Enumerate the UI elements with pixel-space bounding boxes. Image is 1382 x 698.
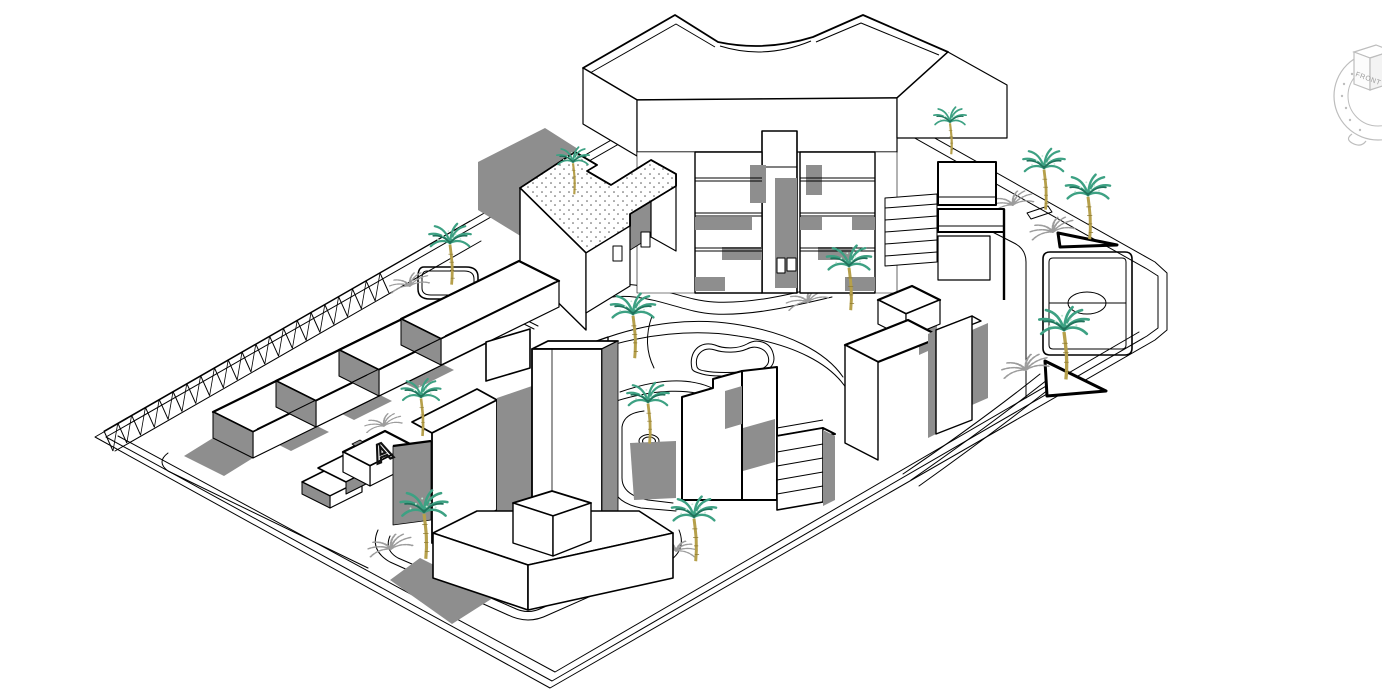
main-community-building-face [695,277,725,291]
parking-stall-hatch [141,407,146,435]
center-towers-face [602,341,618,520]
main-community-building-face [938,209,1004,232]
parking-deck-building-face [777,428,823,510]
main-community-building-face [750,165,766,203]
main-community-building-face [777,258,785,273]
main-community-building-face [787,258,796,271]
palm-tree-shadow [362,411,403,433]
right-cluster-buildings-face [928,330,936,438]
parking-stall-hatch [223,360,228,388]
parking-deck-building-face [777,420,823,428]
right-cluster-buildings-face [845,345,878,460]
parking-stall-hatch [292,320,297,348]
parking-stall-hatch [154,399,159,427]
main-community-building-face [938,162,996,205]
parking-deck-building [777,420,835,510]
parking-stall-hatch [113,423,118,451]
right-cluster-buildings-face [936,316,972,434]
tower-pad-top [622,411,644,427]
parking-stall-hatch [210,368,215,396]
parking-stall-hatch [182,384,187,412]
parking-stall-hatch [334,297,339,325]
stippled-roof-building-face [641,232,650,247]
palm-tree-shadow [365,530,414,557]
parking-stall-hatch [265,336,270,364]
main-community-building-face [852,217,875,230]
parking-stall-hatch [306,313,311,341]
main-community-building-face [722,247,762,260]
parking-stall-hatch [320,305,325,333]
stippled-roof-building-face [613,246,622,261]
parking-stall-hatch [348,289,353,317]
parking-stall-hatch [237,352,242,380]
main-community-building [583,15,1007,300]
palm-tree-shadow [999,350,1051,378]
shadow-tower-pad [630,441,676,500]
parking-stall-hatch [196,376,201,404]
planter-triangle-bottom [1045,361,1106,396]
center-apartment-block [682,367,777,500]
center-apartment-block-face [743,419,775,471]
courtyard-path-7 [647,316,654,368]
main-community-building-face [583,15,948,100]
center-apartment-block-face [725,386,742,429]
view-cube-roll-arrow-icon[interactable] [1349,134,1367,145]
view-cube[interactable]: FRONT [1334,45,1382,145]
parking-stall-hatch [127,415,132,443]
parking-stall-hatch [279,328,284,356]
main-community-building-face [806,165,822,195]
shadow-right-tower-strip [972,323,988,405]
buildings [213,15,1007,610]
main-community-building-face [938,236,990,280]
parking-deck-building-face [823,430,835,506]
parking-stall-hatch [251,344,256,372]
main-community-building-face [695,217,752,230]
parking-stall-hatch [168,392,173,420]
model-canvas[interactable]: A FRONT [0,0,1382,698]
main-community-building-face [800,217,822,230]
palm-tree [1066,175,1110,240]
parking-stall-hatch [375,273,380,301]
parking-stall-hatch [361,281,366,309]
drawing-area[interactable]: A FRONT [0,0,1382,698]
